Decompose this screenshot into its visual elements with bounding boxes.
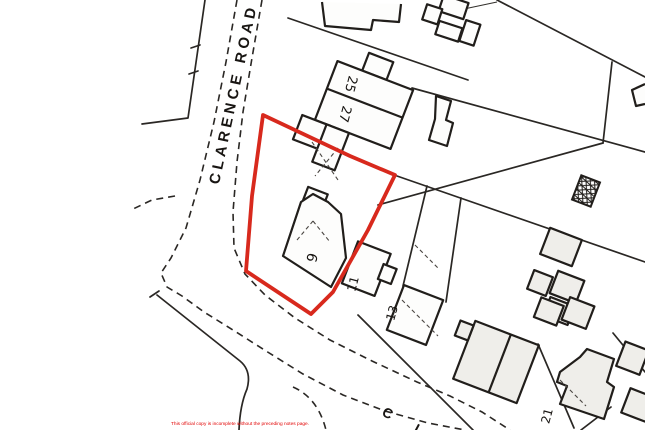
parcel-line-vertical <box>603 62 612 143</box>
outbuilding-cluster-right <box>527 228 594 329</box>
road-label-partial: C L <box>380 404 437 430</box>
building-25-27 <box>288 39 420 187</box>
building-top-edge <box>322 2 401 30</box>
building-9 <box>283 187 346 287</box>
building-small-stepped <box>429 96 453 146</box>
house-number-21: 21 <box>538 407 555 425</box>
parcel-line-2 <box>497 0 645 77</box>
kerb-southwest <box>157 295 248 430</box>
title-plan-map: CLARENCE ROAD C L 25 27 9 11 13 21 This … <box>0 0 645 430</box>
building-pair-southeast <box>440 316 539 403</box>
road-edge-dashed-spur <box>133 196 175 209</box>
outbuilding <box>435 21 462 42</box>
glasshouse-crosshatch <box>572 175 600 206</box>
buildings <box>283 0 645 422</box>
garden-diagonal-11 <box>415 245 438 268</box>
building-right-edge-notch <box>632 84 645 106</box>
outbuilding <box>459 20 480 46</box>
title-plan-page: CLARENCE ROAD C L 25 27 9 11 13 21 This … <box>0 0 645 430</box>
building-right-edge <box>621 388 645 422</box>
parcel-line-13-east <box>446 198 461 302</box>
building-right-edge <box>616 342 645 375</box>
road-label-clarence: CLARENCE ROAD <box>206 2 261 185</box>
kerb-west-clarence <box>142 0 205 124</box>
disclaimer-text: This official copy is incomplete without… <box>171 421 309 427</box>
outbuilding <box>540 228 582 266</box>
parcel-line-rear-fence <box>378 143 603 205</box>
parcel-line-11-13 <box>403 186 427 286</box>
building-9-outline <box>283 194 346 287</box>
